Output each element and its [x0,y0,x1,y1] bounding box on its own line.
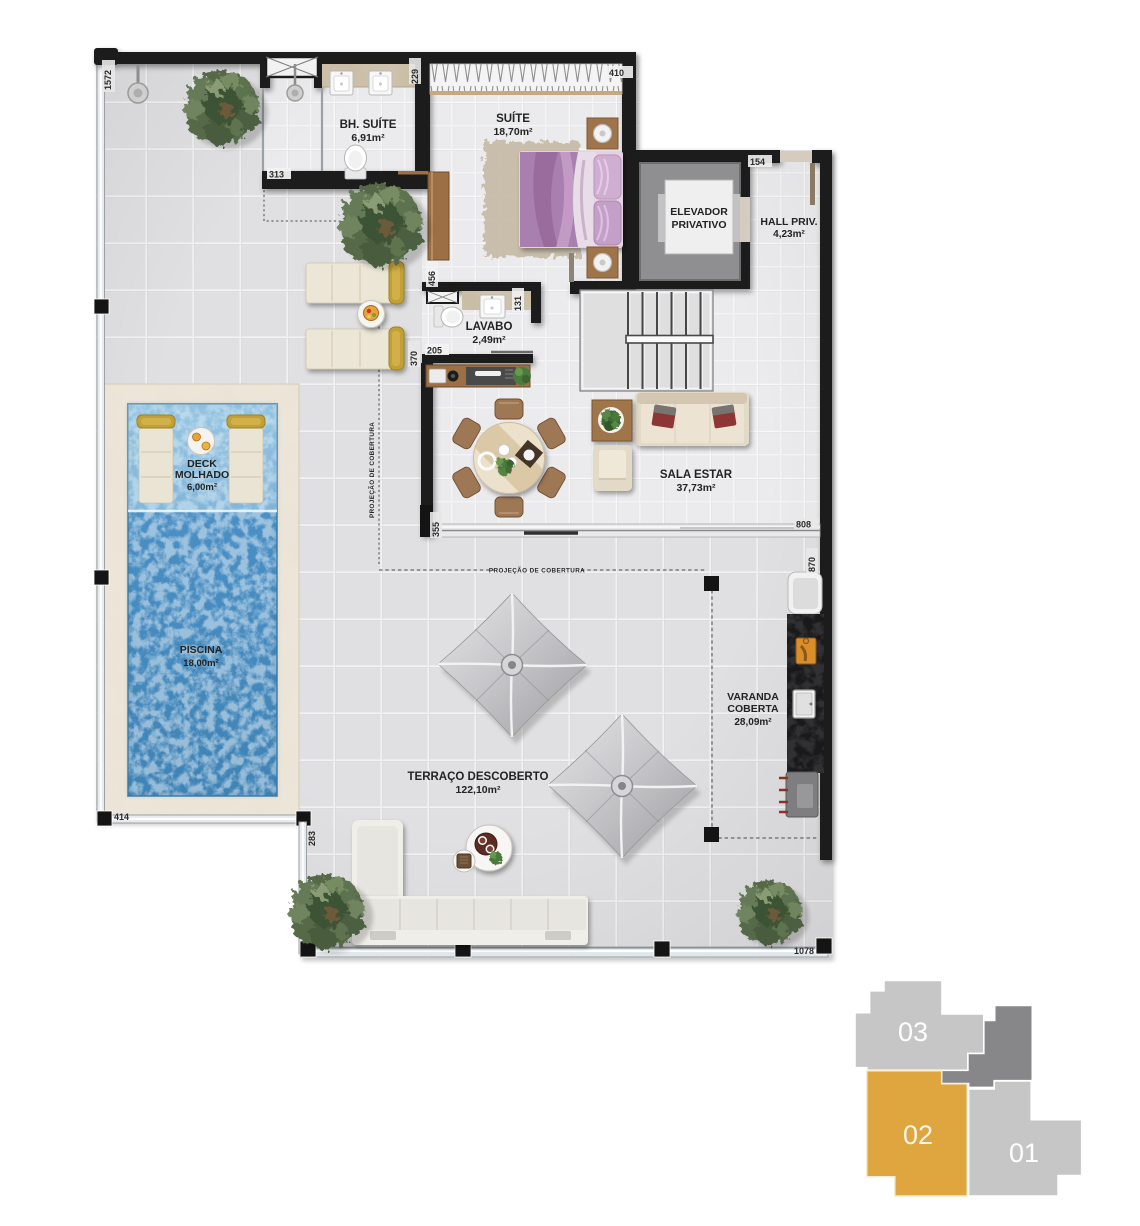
svg-text:SUÍTE: SUÍTE [496,112,530,125]
svg-text:283: 283 [307,831,317,846]
svg-text:BH. SUÍTE: BH. SUÍTE [340,118,397,131]
svg-text:01: 01 [1009,1138,1039,1168]
svg-text:LAVABO: LAVABO [466,321,513,333]
svg-text:370: 370 [409,351,419,366]
svg-text:MOLHADO: MOLHADO [175,469,229,481]
svg-text:229: 229 [410,69,420,84]
svg-text:2,49m²: 2,49m² [472,334,506,346]
svg-text:6,00m²: 6,00m² [187,482,217,493]
svg-text:154: 154 [750,157,765,167]
svg-text:1078: 1078 [794,946,814,956]
svg-text:VARANDA: VARANDA [727,691,779,703]
svg-text:ELEVADOR: ELEVADOR [670,206,728,218]
svg-text:410: 410 [609,68,624,78]
svg-text:18,70m²: 18,70m² [493,126,533,138]
svg-text:870: 870 [807,557,817,572]
svg-text:02: 02 [903,1120,933,1150]
svg-text:205: 205 [427,346,442,356]
svg-text:SALA ESTAR: SALA ESTAR [660,469,733,481]
svg-text:122,10m²: 122,10m² [456,784,501,796]
svg-text:TERRAÇO DESCOBERTO: TERRAÇO DESCOBERTO [408,771,549,783]
svg-text:03: 03 [898,1017,928,1047]
svg-text:PROJEÇÃO DE COBERTURA: PROJEÇÃO DE COBERTURA [367,422,376,518]
svg-text:COBERTA: COBERTA [727,703,779,715]
svg-text:6,91m²: 6,91m² [351,132,385,144]
svg-text:131: 131 [513,296,523,311]
svg-text:PISCINA: PISCINA [180,644,223,656]
svg-text:808: 808 [796,520,811,530]
svg-text:HALL PRIV.: HALL PRIV. [760,216,817,228]
svg-text:1572: 1572 [103,70,113,90]
svg-text:355: 355 [431,522,441,537]
svg-text:313: 313 [269,170,284,180]
svg-text:PRIVATIVO: PRIVATIVO [671,219,726,231]
svg-text:414: 414 [114,812,129,822]
svg-text:PROJEÇÃO DE COBERTURA: PROJEÇÃO DE COBERTURA [489,566,585,575]
svg-text:18,00m²: 18,00m² [183,658,218,669]
svg-text:456: 456 [427,271,437,286]
svg-text:37,73m²: 37,73m² [676,482,716,494]
svg-text:4,23m²: 4,23m² [773,229,805,240]
svg-text:28,09m²: 28,09m² [734,717,772,728]
